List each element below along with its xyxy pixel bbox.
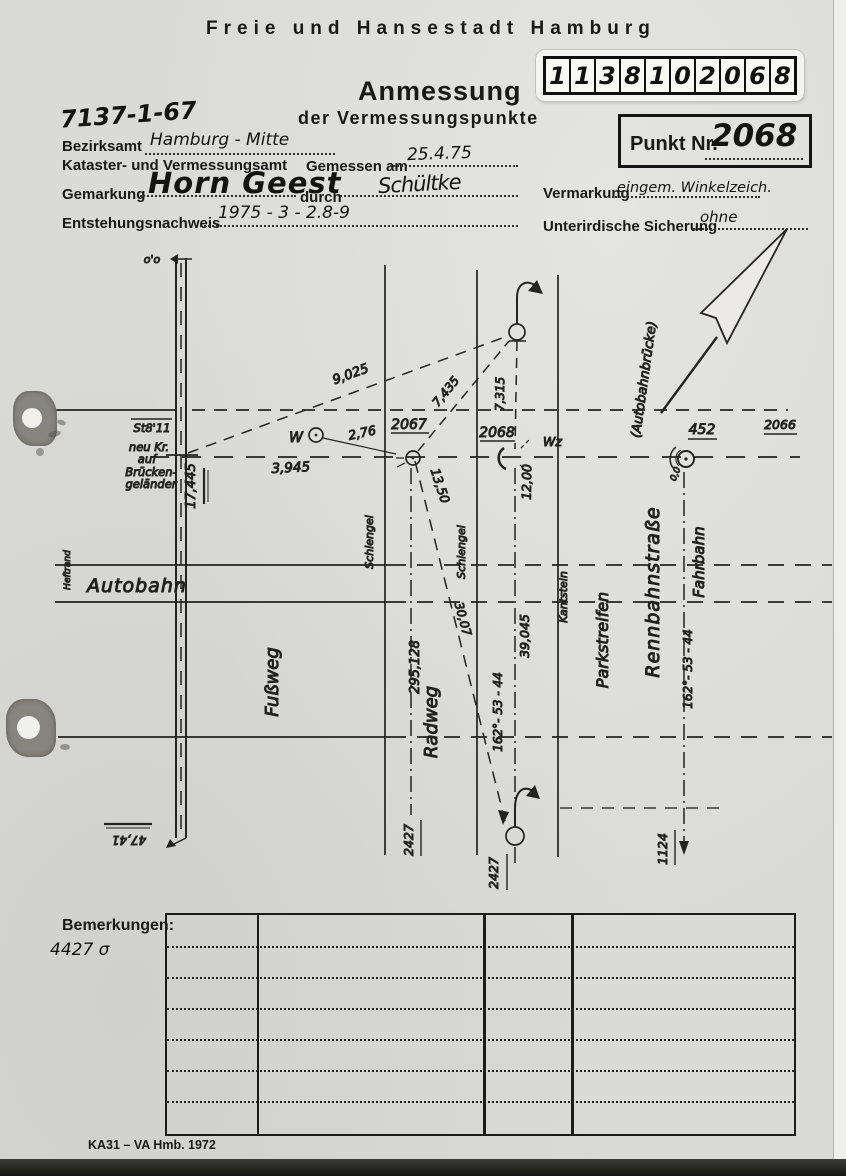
scan-bottom-edge — [0, 1159, 846, 1176]
wz-label: Wz — [543, 434, 562, 449]
punkt-nr-value: 2068 — [711, 118, 797, 154]
measure-39045: 39,045 — [517, 614, 532, 658]
autobahnbruecke-label: (Autobahnbrücke) — [629, 320, 660, 438]
punch-hole-patch — [13, 391, 57, 446]
point-number-sticker: 1 1 3 8 1 0 2 0 6 8 — [536, 50, 804, 101]
sticker-digit: 2 — [696, 59, 721, 92]
form-id-footer: KA31 – VA Hmb. 1972 — [88, 1138, 216, 1152]
lamp-post-bottom — [506, 827, 524, 845]
sticker-digit-cells: 1 1 3 8 1 0 2 0 6 8 — [543, 56, 797, 95]
point-1124-label: 1124 — [655, 833, 670, 865]
angle-measure-2: 162°- 53 - 44 — [681, 629, 695, 709]
vermarkung-underline — [612, 196, 760, 198]
point-2427b-label: 2427 — [486, 857, 501, 889]
point-452-label: 452 — [689, 422, 716, 438]
gemessen-underline — [390, 165, 518, 167]
schlengel-label-2: Schlengel — [455, 525, 468, 579]
punch-hole-patch — [6, 699, 56, 757]
point-number-box: Punkt Nr. 2068 — [618, 114, 812, 168]
gemarkung-underline — [140, 195, 296, 197]
bezirksamt-label: Bezirksamt — [62, 138, 142, 155]
measure-9025: 9,025 — [331, 361, 371, 388]
measure-00: 0,0 — [669, 465, 684, 482]
bezirksamt-value: Hamburg - Mitte — [150, 130, 289, 150]
ink-smudge — [60, 744, 70, 750]
table-row-line — [167, 1070, 794, 1072]
gemessen-value: 25.4.75 — [407, 143, 473, 165]
punch-hole — [22, 408, 42, 428]
form-subtitle: der Vermessungspunkte — [298, 108, 539, 129]
point-2067-label: 2067 — [391, 417, 427, 433]
bemerkungen-table — [165, 913, 796, 1136]
sticker-digit: 3 — [596, 59, 621, 92]
sticker-digit: 8 — [621, 59, 646, 92]
sticker-digit: 1 — [646, 59, 671, 92]
measure-1350: 13,50 — [428, 466, 453, 505]
sticker-digit: 0 — [721, 59, 746, 92]
punch-hole — [17, 716, 40, 739]
north-arrow-head — [701, 229, 787, 343]
winkelzeichen-arc — [499, 448, 506, 469]
schlengel-label-1: Schlengel — [363, 515, 376, 569]
point-2066-label: 2066 — [764, 417, 796, 432]
table-row-line — [167, 1101, 794, 1103]
measure-7315: 7,315 — [493, 377, 508, 412]
measure-7435: 7,435 — [430, 374, 463, 410]
point-2427a-label: 2427 — [401, 824, 416, 856]
label-underlines — [131, 419, 797, 890]
fahrbahn-label: Fahrbahn — [690, 526, 708, 597]
table-row-line — [167, 977, 794, 979]
table-row-line — [167, 1039, 794, 1041]
bridge-railing — [104, 254, 198, 848]
angle-measure-1: 162°- 53 - 44 — [491, 672, 505, 752]
survey-sketch: o'o 47,41 St8'11 neu Kr. auf Brücken- ge… — [0, 220, 846, 910]
table-row-line — [167, 946, 794, 948]
road-lines — [55, 265, 832, 857]
gemarkung-label: Gemarkung — [62, 186, 145, 203]
north-arrow — [661, 229, 787, 413]
note-line4: geländer — [125, 477, 177, 491]
table-row-line — [167, 1008, 794, 1010]
vermarkung-value: eingem. Winkelzeich. — [617, 180, 772, 196]
lamp-post-top — [509, 324, 525, 340]
sticker-digit: 1 — [546, 59, 571, 92]
measure-17445: 17,445 — [184, 463, 199, 509]
point-w-label: W — [289, 430, 304, 446]
bezirksamt-underline — [145, 153, 335, 155]
road-fussweg: Fußweg — [262, 647, 283, 717]
bemerkungen-note: 4427 σ — [50, 940, 109, 960]
measure-3945: 3,945 — [271, 459, 310, 477]
scanned-survey-form: Freie und Hansestadt Hamburg 1 1 3 8 1 0… — [0, 0, 846, 1176]
sticker-digit: 8 — [771, 59, 794, 92]
sticker-digit: 0 — [671, 59, 696, 92]
station-label: St8'11 — [134, 421, 171, 435]
rail-bottom-measure: 47,41 — [112, 833, 146, 847]
parkstreifen-label: Parkstreifen — [593, 592, 612, 688]
measure-1200: 12,00 — [519, 464, 535, 500]
bemerkungen-label: Bemerkungen: — [62, 917, 174, 935]
measure-295128: 295,128 — [408, 640, 423, 694]
note-line2: auf — [138, 452, 158, 466]
point-2068-label: 2068 — [479, 425, 515, 441]
rennbahnstrasse-label: Rennbahnstraße — [642, 506, 664, 677]
heftrand-label: Heftrand — [63, 550, 73, 590]
kantstein-label: Kantstein — [557, 571, 570, 623]
durch-underline — [340, 195, 518, 197]
rail-top-label: o'o — [144, 253, 161, 266]
paper-right-edge — [833, 0, 846, 1176]
measure-276: 2,76 — [347, 422, 377, 442]
durch-signature: Schültke — [377, 170, 461, 198]
road-radweg: Radweg — [421, 686, 442, 758]
punkt-nr-underline — [705, 158, 803, 160]
document-number: 7137-1-67 — [59, 96, 197, 133]
page-title: Freie und Hansestadt Hamburg — [206, 18, 656, 40]
sticker-digit: 1 — [571, 59, 596, 92]
ink-smudge — [36, 448, 44, 456]
punkt-nr-label: Punkt Nr. — [630, 133, 718, 156]
road-autobahn: Autobahn — [85, 575, 187, 597]
sticker-digit: 6 — [746, 59, 771, 92]
form-title: Anmessung — [358, 76, 522, 107]
